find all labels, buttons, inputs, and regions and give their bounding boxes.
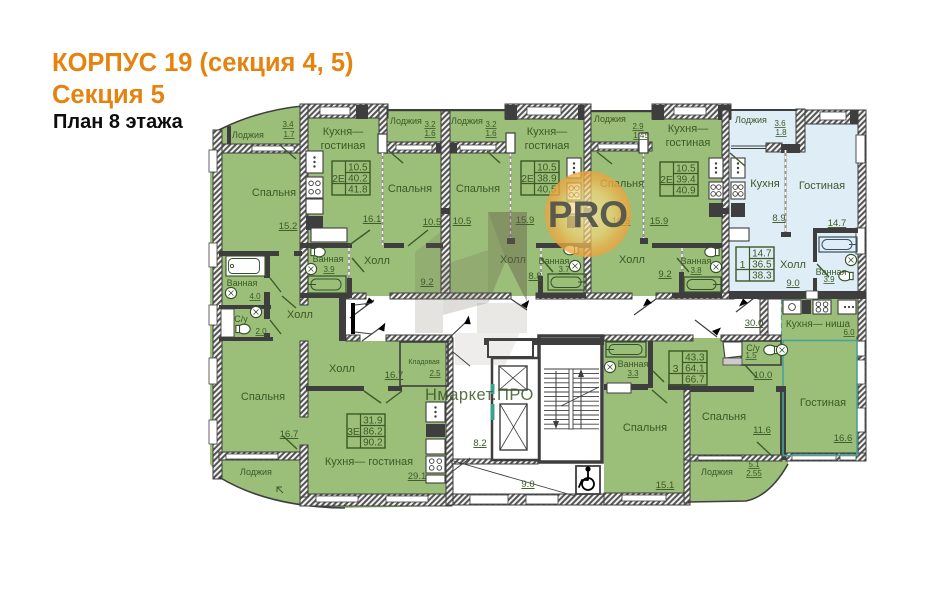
svg-text:43.3: 43.3 (685, 353, 705, 364)
svg-text:86.2: 86.2 (363, 427, 383, 438)
svg-text:9.2: 9.2 (658, 269, 671, 280)
svg-text:Гостиная: Гостиная (800, 397, 846, 409)
svg-text:Ванная: Ванная (227, 278, 258, 288)
svg-text:С/у: С/у (234, 314, 248, 324)
svg-text:Холл: Холл (329, 363, 355, 375)
svg-text:Кухня—: Кухня— (668, 123, 708, 135)
svg-text:2Е: 2Е (660, 174, 673, 186)
svg-text:3.8: 3.8 (690, 266, 702, 275)
svg-text:2.5: 2.5 (429, 369, 441, 378)
svg-text:2Е: 2Е (521, 173, 534, 185)
svg-text:38.9: 38.9 (537, 174, 557, 185)
svg-text:Кладовая: Кладовая (408, 359, 440, 366)
svg-text:Ванная: Ванная (313, 254, 344, 264)
svg-text:66.7: 66.7 (685, 375, 705, 386)
svg-text:3.2: 3.2 (424, 120, 436, 129)
svg-text:Холл: Холл (287, 309, 313, 321)
svg-text:План 8 этажа: План 8 этажа (53, 111, 184, 133)
svg-text:Нмаркет.ПРО: Нмаркет.ПРО (425, 386, 534, 404)
svg-text:Холл: Холл (780, 259, 806, 271)
svg-text:10.5: 10.5 (676, 164, 696, 175)
svg-text:гостиная: гостиная (666, 137, 711, 149)
svg-text:3.2: 3.2 (485, 120, 497, 129)
svg-text:31.9: 31.9 (363, 416, 383, 427)
svg-text:38.3: 38.3 (752, 271, 772, 282)
svg-text:Лоджия: Лоджия (390, 116, 422, 126)
svg-text:6.0: 6.0 (843, 328, 855, 337)
svg-text:3.9: 3.9 (823, 275, 835, 284)
svg-text:1.8: 1.8 (775, 128, 787, 137)
svg-text:Кухня—: Кухня— (323, 126, 363, 138)
svg-text:64.1: 64.1 (685, 364, 705, 375)
svg-text:3Е: 3Е (347, 426, 360, 438)
svg-text:15.1: 15.1 (656, 480, 675, 491)
svg-text:2.0: 2.0 (255, 327, 267, 336)
svg-text:3.7: 3.7 (558, 265, 570, 274)
svg-text:16.7: 16.7 (385, 370, 404, 381)
svg-text:PRO: PRO (548, 194, 628, 235)
svg-text:3.9: 3.9 (323, 265, 335, 274)
svg-text:Ванная: Ванная (618, 359, 649, 369)
svg-text:Холл: Холл (619, 254, 645, 266)
svg-text:40.2: 40.2 (348, 174, 368, 185)
svg-text:8.9: 8.9 (772, 213, 785, 224)
svg-text:3: 3 (673, 363, 679, 375)
svg-text:КОРПУС 19 (секция 4, 5): КОРПУС 19 (секция 4, 5) (52, 49, 354, 77)
svg-text:10.5: 10.5 (537, 163, 557, 174)
svg-text:1.7: 1.7 (283, 130, 295, 139)
svg-text:Спальня: Спальня (623, 422, 667, 434)
svg-text:16.1: 16.1 (363, 214, 382, 225)
svg-text:15.2: 15.2 (279, 221, 298, 232)
svg-text:гостиная: гостиная (321, 140, 366, 152)
svg-text:Спальня: Спальня (456, 183, 500, 195)
svg-text:10.5: 10.5 (453, 216, 472, 227)
svg-text:90.2: 90.2 (363, 438, 383, 449)
svg-text:2Е: 2Е (332, 173, 345, 185)
svg-text:2.9: 2.9 (632, 122, 644, 131)
svg-text:Гостиная: Гостиная (799, 180, 845, 192)
svg-text:15.9: 15.9 (650, 216, 669, 227)
svg-text:30.0: 30.0 (745, 318, 764, 329)
svg-text:10.0: 10.0 (754, 370, 773, 381)
svg-text:Лоджия: Лоджия (735, 115, 767, 125)
svg-text:8.8: 8.8 (528, 271, 541, 282)
svg-text:10.5: 10.5 (423, 217, 442, 228)
svg-text:3.6: 3.6 (774, 119, 786, 128)
svg-text:Лоджия: Лоджия (594, 114, 626, 124)
svg-text:2.55: 2.55 (746, 469, 762, 478)
svg-text:Спальня: Спальня (388, 183, 432, 195)
svg-text:Секция 5: Секция 5 (52, 81, 165, 109)
svg-text:Кухня— гостиная: Кухня— гостиная (325, 456, 413, 468)
svg-text:11.6: 11.6 (753, 425, 771, 436)
svg-text:29.1: 29.1 (408, 471, 427, 482)
svg-text:1.6: 1.6 (485, 129, 497, 138)
svg-text:1.6: 1.6 (424, 129, 436, 138)
svg-text:1.45: 1.45 (633, 131, 649, 140)
svg-text:8.2: 8.2 (473, 438, 486, 449)
svg-text:1.5: 1.5 (745, 351, 757, 360)
svg-text:9.0: 9.0 (521, 479, 534, 490)
svg-text:Холл: Холл (364, 255, 390, 267)
svg-text:4.0: 4.0 (249, 292, 261, 301)
svg-text:Ванная: Ванная (681, 256, 712, 266)
svg-text:Лоджия: Лоджия (240, 467, 272, 477)
svg-text:3.3: 3.3 (627, 369, 639, 378)
svg-text:3.4: 3.4 (282, 120, 294, 129)
svg-text:Лоджия: Лоджия (701, 467, 733, 477)
svg-text:Лоджия: Лоджия (232, 130, 264, 140)
svg-text:9.0: 9.0 (786, 278, 799, 289)
svg-text:39.4: 39.4 (676, 175, 696, 186)
svg-text:16.7: 16.7 (280, 429, 299, 440)
svg-text:Кухня—: Кухня— (527, 126, 567, 138)
svg-text:1: 1 (740, 259, 746, 271)
svg-text:41.8: 41.8 (348, 185, 368, 196)
svg-text:16.6: 16.6 (834, 433, 853, 444)
svg-text:Спальня: Спальня (702, 411, 746, 423)
svg-text:Спальня: Спальня (241, 391, 285, 403)
svg-text:Лоджия: Лоджия (451, 116, 483, 126)
svg-text:Кухня— ниша: Кухня— ниша (786, 319, 851, 330)
svg-text:14.7: 14.7 (752, 249, 772, 260)
svg-text:14.7: 14.7 (828, 218, 847, 229)
svg-text:10.5: 10.5 (348, 163, 368, 174)
svg-text:40.9: 40.9 (676, 186, 696, 197)
svg-text:Кухня: Кухня (750, 178, 779, 190)
svg-text:5.1: 5.1 (748, 460, 760, 469)
svg-text:36.5: 36.5 (752, 260, 772, 271)
svg-text:Спальня: Спальня (252, 187, 296, 199)
svg-text:гостиная: гостиная (525, 140, 570, 152)
